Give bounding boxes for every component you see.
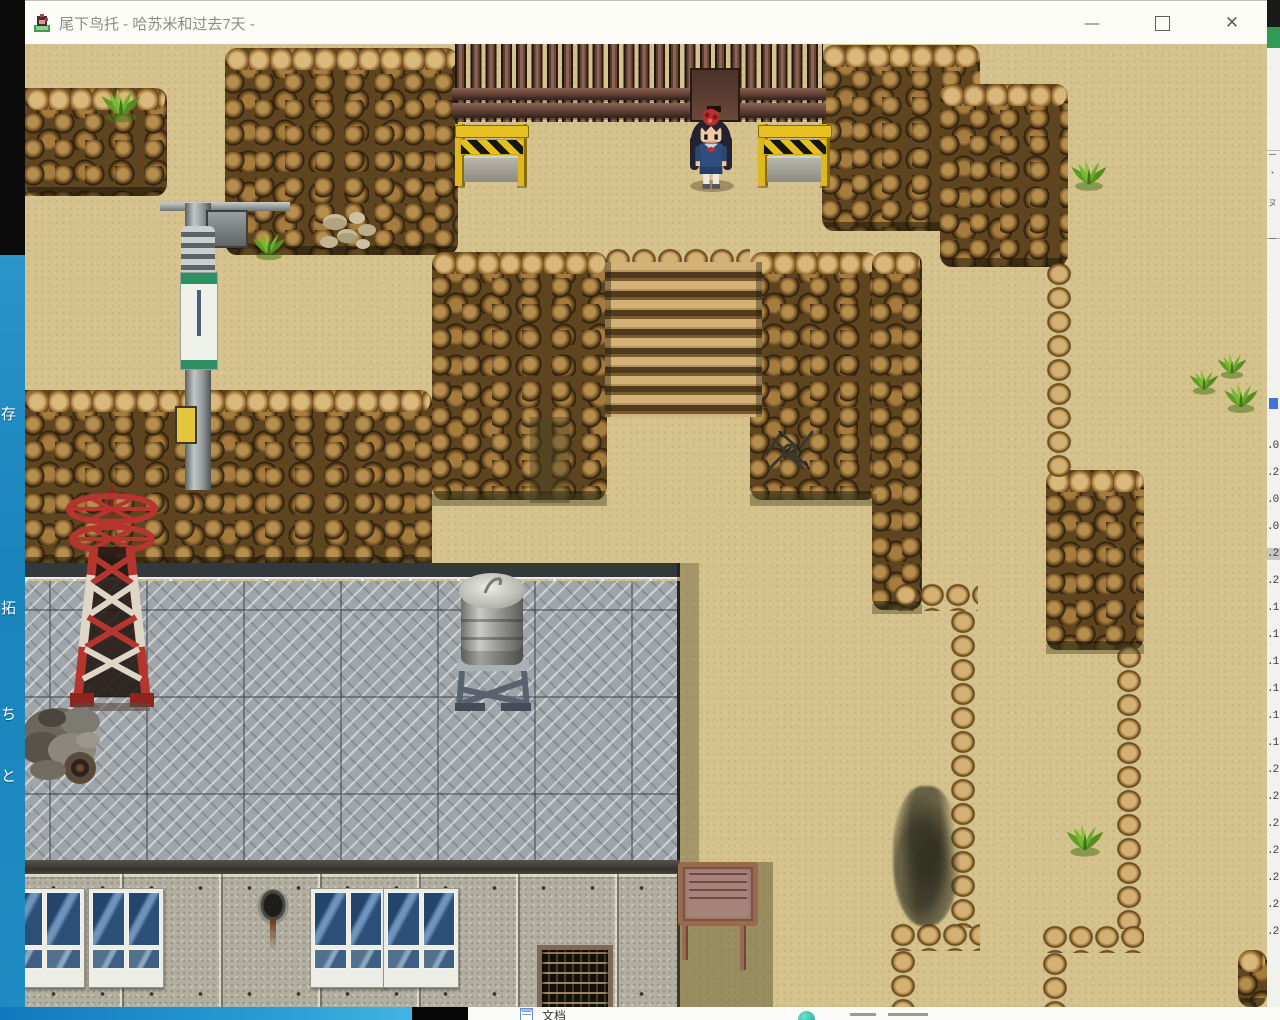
background-taskbar-strip[interactable]: 文档	[468, 1007, 1280, 1020]
cliff-central-left-of-stairs	[432, 252, 607, 500]
minimize-button[interactable]: —	[1069, 1, 1115, 45]
background-window-bottom-black[interactable]	[412, 1007, 468, 1020]
fence-rail	[452, 103, 826, 118]
ventilation-grate	[537, 945, 613, 1007]
building-window	[383, 888, 459, 988]
background-window-left-dark-area	[0, 0, 25, 255]
cliff-column-center-right	[872, 252, 922, 610]
grass-tuft	[98, 84, 144, 124]
close-button[interactable]: ✕	[1209, 1, 1255, 45]
cliff-top-left	[25, 88, 167, 196]
cliff-shadow	[1046, 644, 1144, 654]
grass-tuft	[1063, 820, 1107, 858]
player-character	[684, 108, 738, 192]
document-label[interactable]: 文档	[542, 1007, 566, 1020]
boulder-row	[1042, 925, 1144, 953]
fence-rail	[452, 88, 826, 100]
roof-eave	[25, 860, 680, 874]
building-window	[310, 888, 386, 988]
blue-icon-fragment	[1269, 398, 1278, 409]
title-bar[interactable]: 尾下鸟托 - 哈苏米和过去7天 - — ✕	[25, 0, 1267, 45]
pole-sign	[180, 272, 218, 370]
building-side-shadow	[677, 563, 699, 862]
text-fragment	[888, 1013, 928, 1016]
background-window-left[interactable]: 存拓ちと	[0, 0, 25, 1020]
grass-tuft	[1221, 380, 1261, 414]
rock-cluster	[317, 208, 381, 256]
teal-app-icon[interactable]	[798, 1011, 815, 1020]
maximize-button[interactable]	[1139, 1, 1185, 45]
barbed-wire	[763, 425, 817, 475]
radio-tower	[62, 487, 162, 713]
window-title: 尾下鸟托 - 哈苏米和过去7天 -	[59, 13, 255, 34]
construction-barrier-left	[455, 122, 527, 188]
junk-pile	[25, 700, 120, 792]
pole-plate	[175, 406, 197, 444]
cliff-bottom-right-corner	[1238, 950, 1267, 1007]
grass-tuft	[1187, 366, 1221, 396]
grass-tuft	[250, 228, 288, 262]
stone-stairs	[605, 262, 762, 417]
drain-pipe-hole	[257, 889, 289, 925]
game-window: 尾下鸟托 - 哈苏米和过去7天 - — ✕	[25, 0, 1267, 1007]
background-window-right-green-fragment	[1267, 27, 1280, 48]
boulder-ridge	[890, 950, 916, 1007]
background-window-right[interactable]: ー・ヌー .0.2.0.0.2.2.1.1.1.1.1.1.2.2.2.2.2.…	[1267, 0, 1280, 1020]
cliff-shadow	[872, 604, 922, 614]
water-tank	[455, 575, 531, 711]
background-window-left-blue-area	[0, 255, 25, 1020]
construction-barrier-right	[758, 122, 830, 188]
text-fragment	[850, 1013, 876, 1016]
stair-side-shadow	[530, 417, 570, 503]
document-icon[interactable]	[520, 1008, 533, 1020]
building-window	[88, 888, 164, 988]
boulder-ridge	[1042, 952, 1068, 1007]
scorch-stain	[893, 786, 959, 926]
boulder-row	[890, 923, 980, 951]
cliff-right-mid-block	[1046, 470, 1144, 650]
background-window-bottom-blue[interactable]	[0, 1007, 412, 1020]
boulder-ridge	[1116, 645, 1142, 929]
boulder-ridge	[1046, 262, 1072, 477]
cliff-shadow	[432, 494, 607, 506]
building-window	[25, 888, 85, 988]
grass-tuft	[1068, 156, 1110, 192]
cliff-top-right-extension	[940, 84, 1068, 267]
game-viewport[interactable]	[25, 44, 1267, 1007]
app-icon	[32, 13, 52, 33]
cliff-shadow	[750, 494, 877, 506]
desktop-screen: 存拓ちと ー・ヌー .0.2.0.0.2.2.1.1.1.1.1.1.2.2.2…	[0, 0, 1280, 1020]
rusty-signboard	[678, 862, 758, 964]
